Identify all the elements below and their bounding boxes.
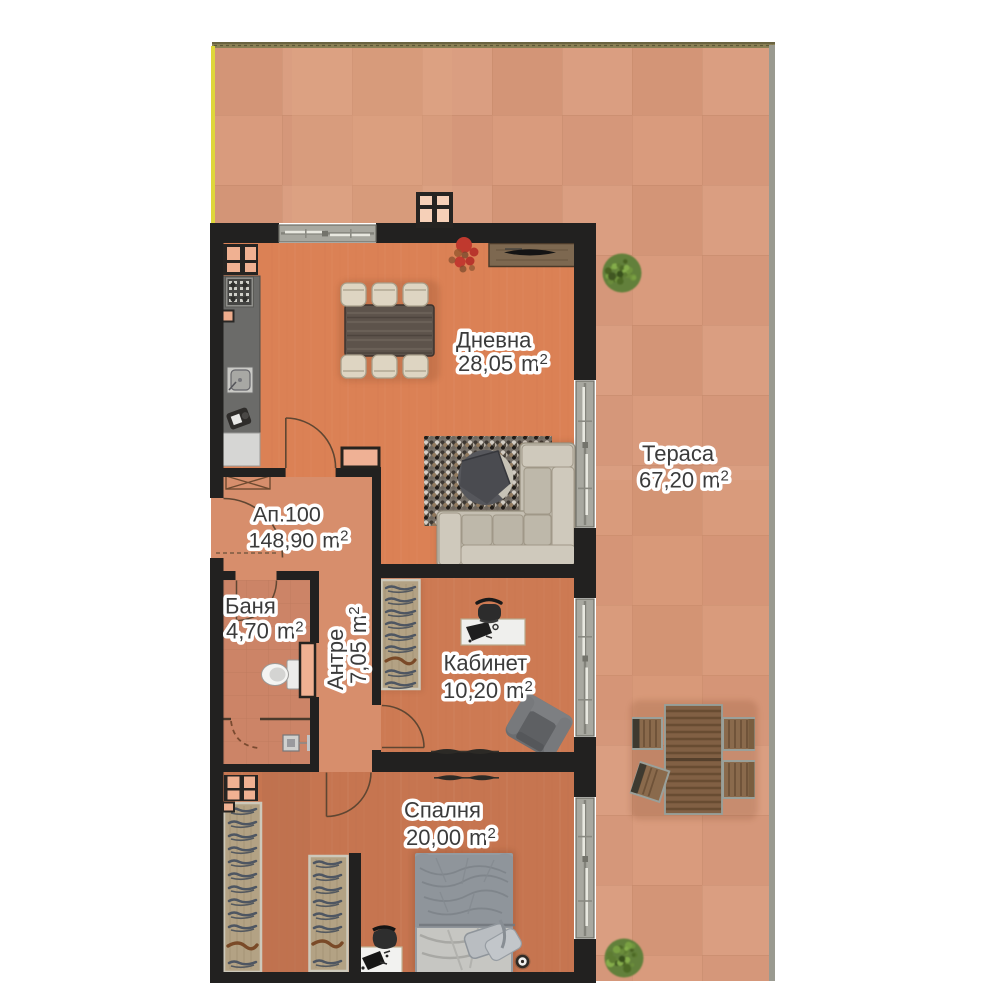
svg-text:10,20 m2: 10,20 m2 bbox=[443, 678, 533, 703]
svg-text:20,00 m2: 20,00 m2 bbox=[406, 825, 496, 850]
svg-text:28,05 m2: 28,05 m2 bbox=[458, 351, 548, 376]
svg-text:Баня: Баня bbox=[225, 594, 276, 619]
svg-text:4,70 m2: 4,70 m2 bbox=[226, 619, 304, 644]
svg-text:Антре: Антре bbox=[323, 629, 348, 690]
svg-text:148,90 m2: 148,90 m2 bbox=[249, 528, 349, 553]
svg-text:Спалня: Спалня bbox=[404, 798, 481, 823]
svg-text:Тераса: Тераса bbox=[642, 441, 715, 466]
svg-text:7,05 m2: 7,05 m2 bbox=[346, 606, 371, 684]
svg-text:Дневна: Дневна bbox=[456, 328, 532, 353]
svg-text:Ап.100: Ап.100 bbox=[253, 503, 321, 527]
svg-text:67,20 m2: 67,20 m2 bbox=[639, 468, 729, 493]
svg-text:Кабинет: Кабинет bbox=[444, 651, 528, 676]
